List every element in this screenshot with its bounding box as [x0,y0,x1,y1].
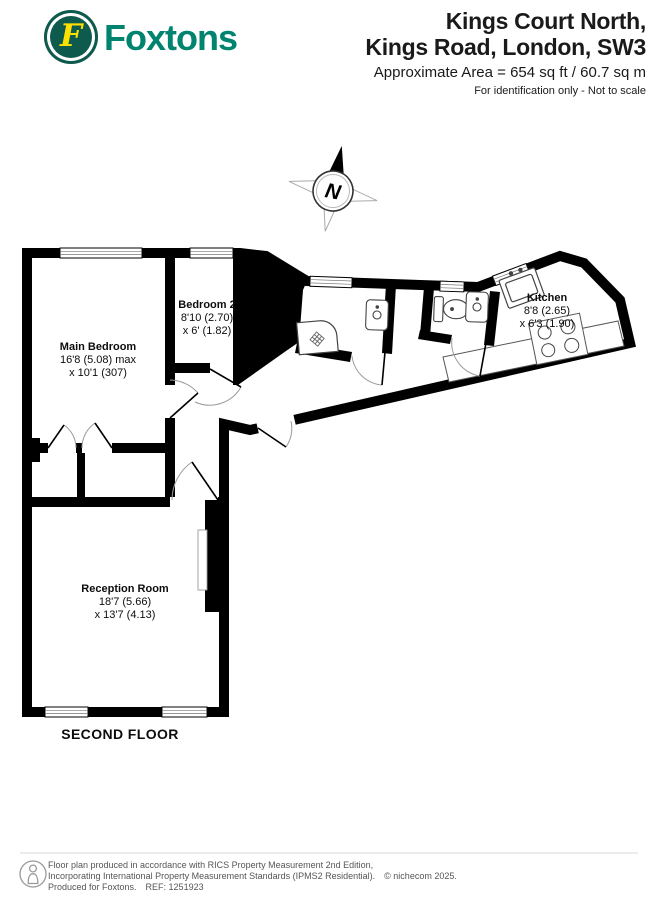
room-dim2: x 6' (1.82) [157,325,257,338]
room-name: Reception Room [55,583,195,596]
room-label-reception: Reception Room 18'7 (5.66) x 13'7 (4.13) [55,583,195,622]
room-name: Main Bedroom [28,341,168,354]
room-name: Kitchen [492,292,602,305]
compass-icon: N [281,137,386,240]
person-icon [20,861,46,887]
footer-line3: Produced for Foxtons. [48,882,137,892]
foxtons-logo-letter: F [60,21,82,52]
room-label-bedroom-2: Bedroom 2 8'10 (2.70) x 6' (1.82) [157,299,257,338]
floorplan-drawing: N [0,0,658,900]
property-title-line1: Kings Court North, [365,8,646,34]
property-title-line2: Kings Road, London, SW3 [365,34,646,60]
room-dim2: x 13'7 (4.13) [55,609,195,622]
title-block: Kings Court North, Kings Road, London, S… [365,8,646,97]
footer-ref: REF: 1251923 [146,882,204,892]
wc-basin-icon [465,292,488,323]
room-dim1: 8'8 (2.65) [492,305,602,318]
room-dim1: 8'10 (2.70) [157,312,257,325]
room-dim2: x 10'1 (307) [28,367,168,380]
floor-label: SECOND FLOOR [30,726,210,742]
footer-disclaimer: Floor plan produced in accordance with R… [48,860,628,893]
shower-basin-icon [365,300,388,331]
room-name: Bedroom 2 [157,299,257,312]
room-dim1: 18'7 (5.66) [55,596,195,609]
room-dim2: x 6'3 (1.90) [492,318,602,331]
shower-tray-icon [297,319,339,354]
foxtons-logo-icon: F [44,10,98,64]
footer-line2: Incorporating International Property Mea… [48,871,375,881]
footer-copyright: © nichecom 2025. [384,871,457,881]
approximate-area: Approximate Area = 654 sq ft / 60.7 sq m [365,64,646,81]
room-label-main-bedroom: Main Bedroom 16'8 (5.08) max x 10'1 (307… [28,341,168,380]
room-label-kitchen: Kitchen 8'8 (2.65) x 6'3 (1.90) [492,292,602,331]
brand-name: Foxtons [104,17,237,59]
wall-recess [198,530,207,590]
footer-line1: Floor plan produced in accordance with R… [48,860,628,871]
room-dim1: 16'8 (5.08) max [28,354,168,367]
floorplan-page: F Foxtons Kings Court North, Kings Road,… [0,0,658,900]
identification-note: For identification only - Not to scale [365,85,646,97]
